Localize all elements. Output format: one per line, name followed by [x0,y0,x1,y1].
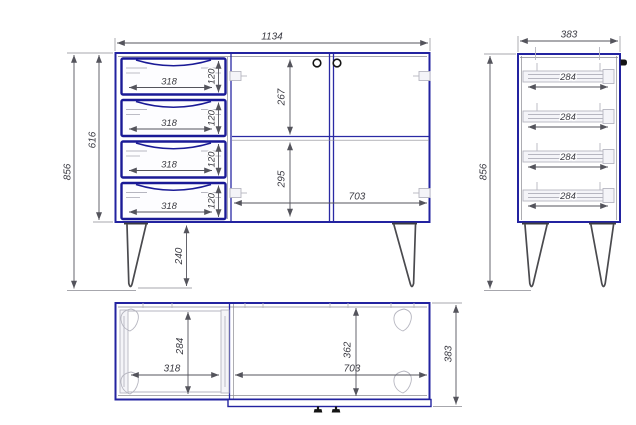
dim-top-depth-total: 383 [444,345,455,362]
dim-front-height-legs: 240 [174,247,185,265]
drawing-canvas: 318 120 318 120 318 120 [0,0,636,425]
dim-top-drawer-width: 318 [164,364,181,375]
dim-drawer2-height: 120 [207,109,218,126]
right-door-knob-icon [333,59,341,67]
dim-drawer1-width: 318 [161,77,178,88]
dim-slide3-length: 284 [559,152,576,163]
dim-front-section-bottom: 295 [277,170,288,188]
dim-slide1-length: 284 [559,72,576,83]
dim-drawer4-height: 120 [207,192,218,209]
dim-front-door-width: 703 [349,192,366,203]
dim-top-inner-depth: 362 [343,341,354,358]
front-right-leg [392,224,417,287]
side-right-leg [589,224,616,287]
dim-top-drawer-depth: 284 [175,337,186,355]
front-drawer-2: 318 120 [122,100,226,136]
top-door-front [228,400,431,407]
dim-drawer3-width: 318 [161,160,178,171]
side-left-leg [522,224,549,287]
dim-drawer3-height: 120 [207,151,218,168]
dim-slide2-length: 284 [559,112,576,123]
dim-front-width-total: 1134 [261,32,283,43]
top-knob-right-icon [332,407,341,413]
front-drawer-4: 318 120 [122,183,226,219]
dim-drawer4-width: 318 [161,201,178,212]
front-drawer-3: 318 120 [122,142,226,178]
dim-drawer1-height: 120 [207,68,218,85]
front-view: 318 120 318 120 318 120 [63,32,431,291]
dim-side-height-total: 856 [479,163,490,180]
left-door-knob-icon [313,59,321,67]
top-view: 284 318 703 362 383 [116,303,463,413]
technical-drawing: 318 120 318 120 318 120 [0,0,636,425]
dim-top-door-width: 703 [344,364,361,375]
front-drawer-1: 318 120 [122,59,226,95]
dim-front-height-total: 856 [63,163,74,180]
dim-drawer2-width: 318 [161,118,178,129]
dim-front-height-body: 616 [88,131,99,148]
side-view: 284 284 284 284 [479,30,628,291]
top-cabinet-body [116,303,430,400]
dim-side-depth-total: 383 [561,30,578,41]
dim-slide4-length: 284 [559,191,576,202]
dim-front-section-top: 267 [277,88,288,106]
side-knob-icon [621,60,628,66]
front-left-leg [124,224,148,287]
top-knob-left-icon [314,407,323,413]
